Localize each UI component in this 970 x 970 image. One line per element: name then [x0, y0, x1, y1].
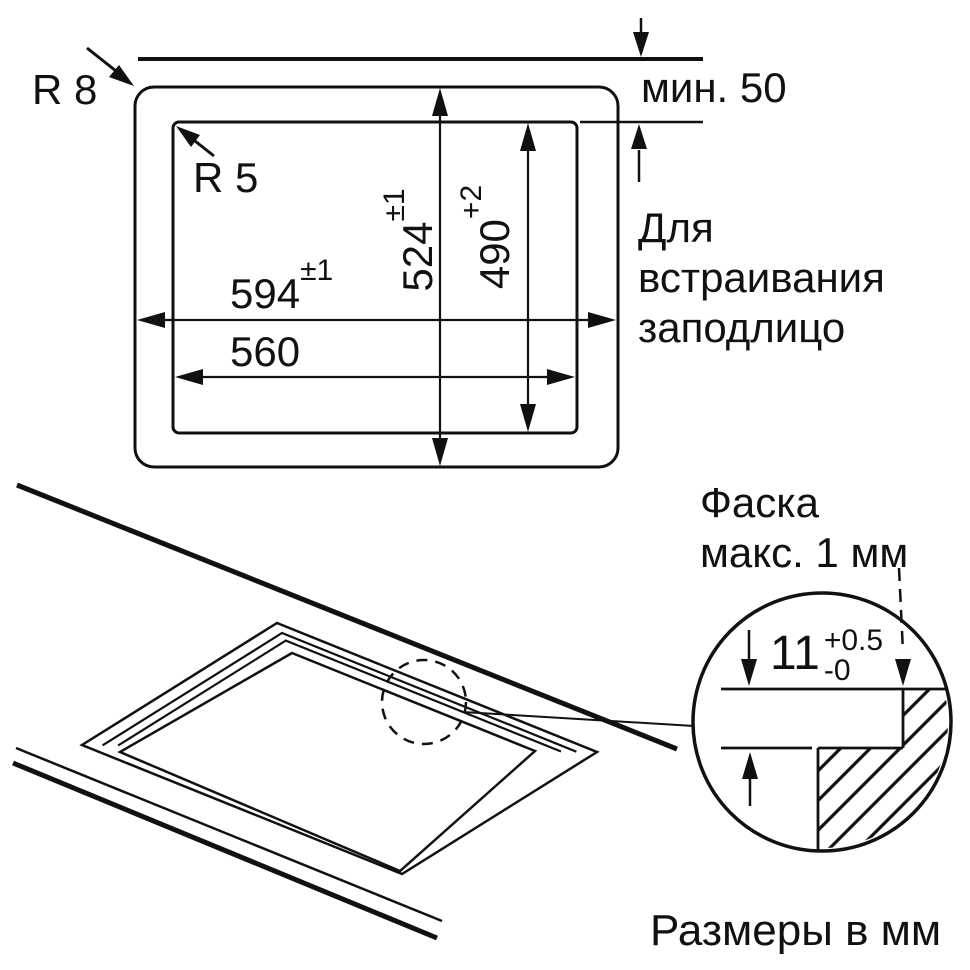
dim-outer-width-tolerance: ±1: [300, 254, 333, 287]
dim-inner-width-label: 560: [230, 330, 300, 374]
units-note: Размеры в мм: [650, 908, 941, 954]
inner-radius-label: R 5: [193, 156, 258, 200]
dim-outer-width-label: 594±1: [230, 272, 333, 316]
cutout-outer-outline: [135, 87, 618, 467]
min-clearance-label: мин. 50: [641, 66, 787, 110]
recess-depth-label: 11 +0.5 -0: [770, 626, 883, 686]
r5-leader-arrow: [176, 126, 214, 156]
worktop-front-edge-lines: [13, 748, 442, 938]
dim-outer-depth-label: 524±1: [396, 155, 440, 325]
dim-inner-depth-tolerance: +2: [455, 185, 488, 219]
detail-reference-circle: [382, 660, 694, 744]
recess-depth-tolerances: +0.5 -0: [824, 626, 883, 686]
outer-radius-label: R 8: [32, 68, 97, 112]
hob-outline-isometric: [82, 623, 597, 874]
dim-inner-depth-label: 490+2: [473, 152, 517, 322]
dim-outer-width-line: [137, 312, 616, 328]
recess-depth-dimension-arrows: [741, 630, 758, 806]
dim-outer-depth-tolerance: ±1: [378, 188, 411, 221]
installation-drawing: R 8 R 5 мин. 50 594±1 560 524±1 490+2 Дл…: [0, 0, 970, 970]
worktop-back-edge-line: [17, 485, 677, 749]
flush-mounting-note: Для встраивания заподлицо: [638, 203, 885, 353]
dim-inner-depth-line: [520, 123, 536, 432]
chamfer-note: Фаска макс. 1 мм: [700, 478, 908, 578]
